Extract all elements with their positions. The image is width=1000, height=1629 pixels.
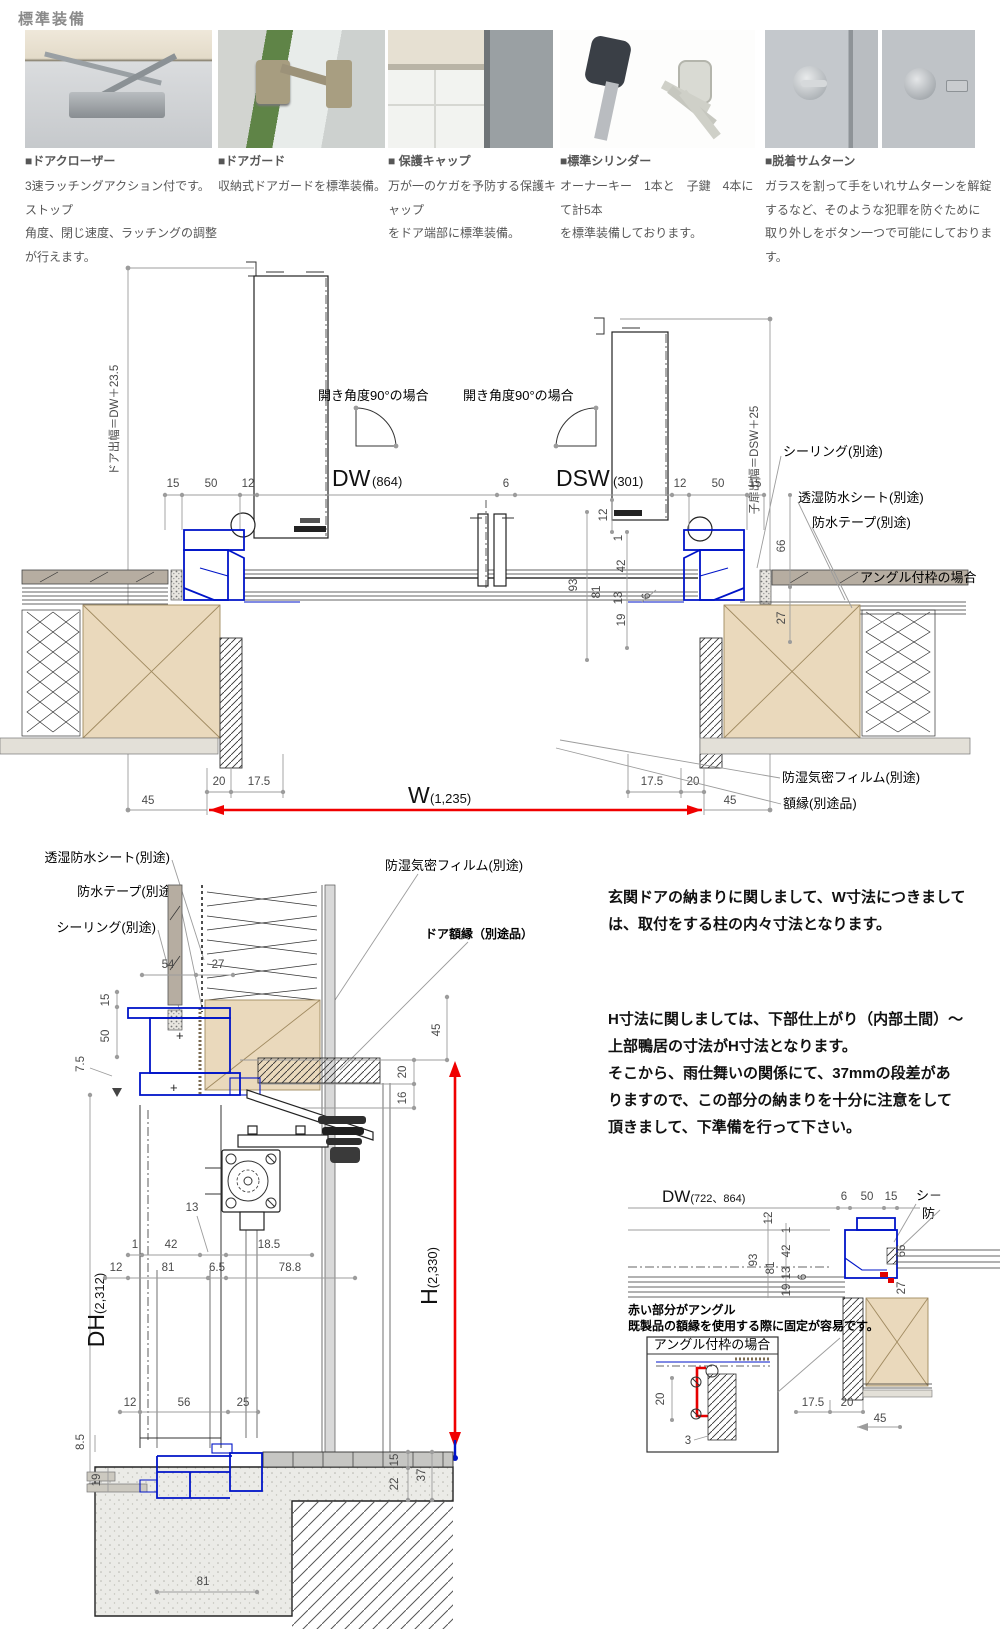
note-line: H寸法に関しましては、下部仕上がり（内部土間）～: [608, 1011, 963, 1028]
svg-text:78.8: 78.8: [279, 1262, 301, 1274]
detail-wall: [843, 1298, 932, 1400]
plan-section-drawing: 開き角度90°の場合 開き角度90°の場合 ドア出幅＝DW＋23.5 子扉出幅＝…: [0, 230, 1000, 830]
svg-text:子扉出幅＝DSW＋25: 子扉出幅＝DSW＋25: [747, 406, 761, 515]
svg-text:6: 6: [797, 1274, 809, 1280]
svg-text:12: 12: [242, 478, 255, 490]
page-title: 標準装備: [18, 8, 86, 29]
svg-text:12: 12: [110, 1262, 123, 1274]
ground-hatch: [292, 1501, 453, 1629]
svg-text:19: 19: [616, 614, 628, 627]
svg-text:27: 27: [212, 959, 225, 971]
film-label: 防湿気密フィルム(別途): [782, 770, 920, 785]
casing-label: 額縁(別途品): [783, 796, 857, 811]
dim-54-27: 54 27: [140, 959, 235, 977]
svg-text:25: 25: [237, 1397, 250, 1409]
svg-text:20: 20: [397, 1066, 409, 1079]
angle-box: アングル付枠の場合 20 3: [647, 1337, 840, 1452]
trunc-sealing-label: シ－: [916, 1188, 942, 1203]
dim-left-top: 15 50 7.5: [75, 990, 122, 1097]
svg-text:45: 45: [142, 795, 155, 807]
protect-cap-photo: [388, 30, 553, 148]
detail-threshold: [628, 1230, 845, 1297]
svg-text:H(2,330): H(2,330): [416, 1247, 442, 1305]
feature-name: ■ 保護キャップ: [388, 150, 560, 173]
svg-text:56: 56: [178, 1397, 191, 1409]
svg-text:+: +: [170, 1080, 178, 1095]
svg-text:3: 3: [685, 1435, 691, 1447]
note-line: は、取付をする柱の内々寸法となります。: [608, 916, 891, 933]
tile-joint2: [434, 70, 436, 148]
svg-text:13: 13: [613, 592, 625, 605]
svg-text:45: 45: [724, 795, 737, 807]
svg-text:8.5: 8.5: [75, 1434, 87, 1450]
svg-text:6: 6: [503, 478, 509, 490]
door-edge: [484, 30, 553, 148]
note-line: りますので、この部分の納まりを十分に注意をして: [608, 1092, 952, 1109]
sheet-label: 透湿防水シート(別途): [44, 850, 170, 865]
svg-text:(1,235): (1,235): [430, 791, 471, 806]
note-line: 玄関ドアの納まりに関しまして、W寸法につきまして: [608, 889, 966, 906]
frame-left-blue: [184, 530, 300, 602]
feature-desc: するなど、そのような犯罪を防ぐために: [765, 199, 997, 222]
catalog-page: 標準装備 ■ドアクローザー 3速ラッチングアクション付です。ストップ 角度、閉じ…: [0, 0, 1000, 1629]
svg-text:16: 16: [397, 1092, 409, 1105]
svg-text:既製品の額縁を使用する際に固定が容易です。: 既製品の額縁を使用する際に固定が容易です。: [628, 1318, 879, 1333]
svg-text:1: 1: [781, 1227, 793, 1233]
open-angle-label-1: 開き角度90°の場合: [318, 388, 429, 403]
open-angle-symbol-left: [354, 406, 399, 449]
svg-text:42: 42: [165, 1239, 178, 1251]
svg-text:81: 81: [162, 1262, 175, 1274]
insulation-right: [866, 612, 930, 732]
feature-name: ■ドアクローザー: [25, 150, 217, 173]
guard-catch: [326, 60, 352, 108]
owner-key-stem: [594, 81, 619, 140]
svg-text:66: 66: [776, 540, 788, 553]
svg-text:DW: DW: [332, 465, 371, 491]
svg-text:(864): (864): [372, 474, 402, 489]
svg-text:50: 50: [861, 1191, 874, 1203]
svg-text:W: W: [408, 782, 430, 808]
svg-text:DSW: DSW: [556, 465, 610, 491]
feature-desc: ガラスを割って手をいれサムターンを解錠: [765, 175, 997, 198]
svg-text:DH(2,312): DH(2,312): [83, 1273, 109, 1347]
svg-text:50: 50: [205, 478, 218, 490]
svg-text:15: 15: [749, 478, 762, 490]
hinge-right: [688, 517, 712, 541]
svg-text:12: 12: [674, 478, 687, 490]
feature-desc: 万が一のケガを予防する保護キャップ: [388, 175, 560, 222]
svg-text:20: 20: [841, 1397, 854, 1409]
svg-text:50: 50: [100, 1030, 112, 1043]
cylinder-keys-photo: [560, 30, 755, 148]
angle-note: 赤い部分がアングル 既製品の額縁を使用する際に固定が容易です。: [628, 1302, 879, 1333]
feature-name: ■ドアガード: [218, 150, 386, 173]
thumbturn-photo-2: [882, 30, 975, 148]
svg-text:81: 81: [197, 1576, 210, 1588]
svg-text:17.5: 17.5: [248, 776, 270, 788]
svg-text:81: 81: [591, 586, 603, 599]
open-angle-label-2: 開き角度90°の場合: [463, 388, 574, 403]
feature-desc: オーナーキー 1本と 子鍵 4本にて計5本: [560, 175, 760, 222]
insulation-left: [27, 612, 79, 732]
svg-text:1: 1: [613, 535, 625, 541]
thumbturn-lever: [801, 80, 827, 87]
svg-text:20: 20: [213, 776, 226, 788]
feature-desc: 収納式ドアガードを標準装備。: [218, 175, 386, 198]
svg-text:27: 27: [776, 612, 788, 625]
svg-text:12: 12: [124, 1397, 137, 1409]
casing-right: [700, 738, 970, 754]
svg-text:17.5: 17.5: [802, 1397, 824, 1409]
svg-text:66: 66: [896, 1245, 908, 1258]
caption-door-guard: ■ドアガード 収納式ドアガードを標準装備。: [218, 150, 386, 199]
svg-text:15: 15: [167, 478, 180, 490]
svg-text:27: 27: [896, 1282, 908, 1295]
svg-text:42: 42: [616, 560, 628, 573]
svg-text:93: 93: [568, 579, 580, 592]
dh-dim: DH(2,312): [83, 1093, 109, 1487]
sheet-label: 透湿防水シート(別途): [798, 490, 924, 505]
svg-text:20: 20: [655, 1393, 667, 1406]
note-line: 上部鴨居の寸法がH寸法となります。: [608, 1038, 857, 1055]
frame-right-blue: [628, 530, 744, 602]
notes-text: 玄関ドアの納まりに関しまして、W寸法につきまして は、取付をする柱の内々寸法とな…: [608, 884, 996, 1141]
svg-text:13: 13: [186, 1202, 199, 1214]
tape-label: 防水テープ(別途): [77, 884, 176, 899]
feature-desc: 3速ラッチングアクション付です。ストップ: [25, 175, 217, 222]
svg-text:ドア出幅＝DW＋23.5: ドア出幅＝DW＋23.5: [107, 365, 121, 476]
thumbturn-piece: [946, 80, 968, 92]
door-closer-photo: [25, 30, 212, 148]
svg-text:45: 45: [431, 1024, 443, 1037]
svg-text:42: 42: [781, 1245, 793, 1258]
thumbturn-photo-1: [765, 30, 878, 148]
feature-name: ■標準シリンダー: [560, 150, 760, 173]
vertical-section-drawing: 透湿防水シート(別途) 防水テープ(別途) シーリング(別途) 防湿気密フィルム…: [0, 840, 600, 1629]
svg-text:6.5: 6.5: [209, 1262, 225, 1274]
svg-text:6: 6: [641, 593, 653, 599]
svg-text:15: 15: [885, 1191, 898, 1203]
svg-text:13: 13: [781, 1267, 793, 1280]
sealing-block-left: [171, 570, 182, 600]
trunc-label: 防: [922, 1206, 935, 1221]
tape-label: 防水テープ(別途): [812, 515, 911, 530]
svg-text:赤い部分がアングル: 赤い部分がアングル: [628, 1302, 736, 1317]
sealing-label: シーリング(別途): [56, 920, 156, 935]
svg-text:93: 93: [748, 1254, 760, 1267]
svg-text:50: 50: [712, 478, 725, 490]
svg-text:19: 19: [781, 1284, 793, 1297]
svg-text:+: +: [176, 1028, 184, 1043]
svg-text:18.5: 18.5: [258, 1239, 280, 1251]
angle-detail-drawing: DW(722、864) 6 50 15 シ－ 防: [600, 1130, 1000, 1460]
svg-text:37: 37: [416, 1469, 428, 1482]
svg-text:81: 81: [765, 1262, 777, 1275]
mid-dim-rows: 13 1 42 18.5 12 81 6.5 78.8: [103, 1202, 357, 1280]
kamoi-hatch: [258, 1058, 380, 1083]
svg-text:(301): (301): [613, 474, 643, 489]
sealing-block-right: [760, 570, 771, 604]
svg-text:17.5: 17.5: [641, 776, 663, 788]
svg-text:19: 19: [91, 1474, 103, 1487]
detail-bottom-dims: 17.5 20 45: [794, 1397, 902, 1431]
svg-text:54: 54: [162, 959, 175, 971]
sealing-block: [168, 1010, 182, 1030]
angle-box-title: アングル付枠の場合: [654, 1337, 770, 1352]
hinge-left: [231, 513, 255, 537]
door-casing-label: ドア額縁（別途品）: [425, 926, 533, 941]
thumbturn-removed: [904, 68, 936, 100]
film-label: 防湿気密フィルム(別途): [385, 858, 523, 873]
note-line: そこから、雨仕舞いの関係にて、37mmの段差があ: [608, 1065, 951, 1082]
svg-text:45: 45: [874, 1413, 887, 1425]
tile-strip: [263, 1452, 453, 1467]
svg-text:DW(722、864): DW(722、864): [662, 1187, 745, 1206]
svg-text:6: 6: [841, 1191, 847, 1203]
lower-dim-row: 12 56 25: [118, 1397, 260, 1414]
jamb-hatch-left: [220, 638, 242, 768]
angle-frame-label: アングル付枠の場合: [860, 570, 976, 585]
closer-body: [69, 92, 165, 118]
tile-joint1: [388, 104, 484, 106]
feature-name: ■脱着サムターン: [765, 150, 997, 173]
detail-dims: 12 1 42 13 6 19 93 81 66 27: [748, 1212, 908, 1298]
sealing-label: シーリング(別途): [783, 444, 883, 459]
svg-text:15: 15: [100, 994, 112, 1007]
svg-text:7.5: 7.5: [75, 1056, 87, 1072]
svg-text:22: 22: [389, 1478, 401, 1491]
door-guard-photo: [218, 30, 385, 148]
casing-left: [0, 738, 218, 754]
svg-text:12: 12: [763, 1212, 775, 1225]
svg-text:12: 12: [598, 509, 610, 522]
open-angle-symbol-right: [554, 406, 599, 449]
svg-text:1: 1: [132, 1239, 138, 1251]
svg-text:15: 15: [389, 1454, 401, 1467]
